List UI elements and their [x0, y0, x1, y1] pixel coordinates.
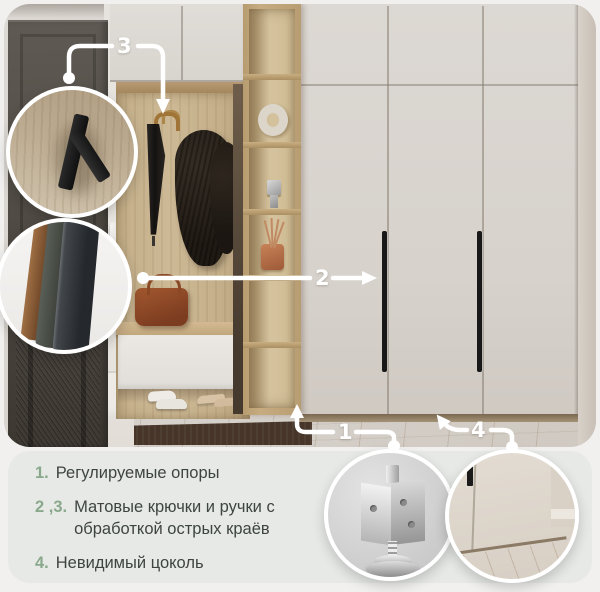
figurine — [267, 180, 281, 195]
legend-label: Невидимый цоколь — [56, 553, 204, 574]
shelf-divider — [243, 342, 301, 348]
leather-bag — [135, 288, 188, 326]
legend-list: 1. Регулируемые опоры 2 ,3. Матовые крюч… — [35, 463, 365, 588]
cabinet-seam — [181, 6, 183, 80]
product-infographic: 1. Регулируемые опоры 2 ,3. Матовые крюч… — [0, 0, 600, 592]
legend-number: 4. — [35, 553, 49, 574]
callout-number-4: 4 — [471, 418, 486, 442]
detail-circle-panel-edges — [0, 218, 132, 354]
wardrobe-seam-horizontal — [296, 84, 578, 86]
detail-circle-plinth — [445, 449, 579, 583]
shelf-divider — [243, 209, 301, 215]
legend-item-2-3: 2 ,3. Матовые крючки и ручки с обработко… — [35, 497, 365, 540]
open-shelf-column — [243, 4, 301, 415]
shelf-divider — [243, 142, 301, 148]
wardrobe-edge-shadow — [574, 4, 578, 418]
screw-hole — [408, 521, 415, 528]
screw-hole — [400, 499, 407, 506]
bag-handle — [147, 274, 181, 295]
wardrobe — [296, 4, 578, 418]
wood-soffit — [116, 82, 250, 93]
baseboard — [551, 509, 579, 519]
detail-circle-hook — [6, 86, 138, 218]
floor-wedge — [445, 536, 579, 583]
wardrobe-seam-vertical — [387, 6, 389, 418]
callout-number-1: 1 — [338, 420, 353, 444]
foot-bracket — [361, 483, 391, 546]
umbrella-tip — [152, 236, 155, 246]
legend-number: 2 ,3. — [35, 497, 67, 540]
screw-hole — [370, 505, 377, 512]
handle-end — [467, 466, 473, 486]
foot-bracket — [391, 479, 425, 545]
right-wall — [578, 4, 596, 447]
legend-item-1: 1. Регулируемые опоры — [35, 463, 365, 484]
legend-item-4: 4. Невидимый цоколь — [35, 553, 365, 574]
white-sneaker — [156, 399, 187, 409]
wardrobe-handle — [477, 231, 482, 372]
foot-stub — [386, 465, 399, 483]
legend-label: Регулируемые опоры — [56, 463, 220, 484]
legend-label: Матовые крючки и ручки с обработкой остр… — [74, 497, 365, 540]
shelf-divider — [243, 275, 301, 281]
legend-number: 1. — [35, 463, 49, 484]
floor-planks — [445, 536, 579, 583]
shelf-divider — [243, 74, 301, 80]
detail-circle-adjustable-foot — [324, 449, 456, 581]
wardrobe-seam-vertical — [482, 6, 484, 418]
callout-number-2: 2 — [315, 266, 330, 290]
figurine-legs — [270, 195, 278, 208]
callout-number-3: 3 — [117, 34, 132, 58]
wardrobe-handle — [382, 231, 387, 372]
foot-base-disc — [366, 561, 420, 577]
donut-vase — [258, 104, 288, 136]
